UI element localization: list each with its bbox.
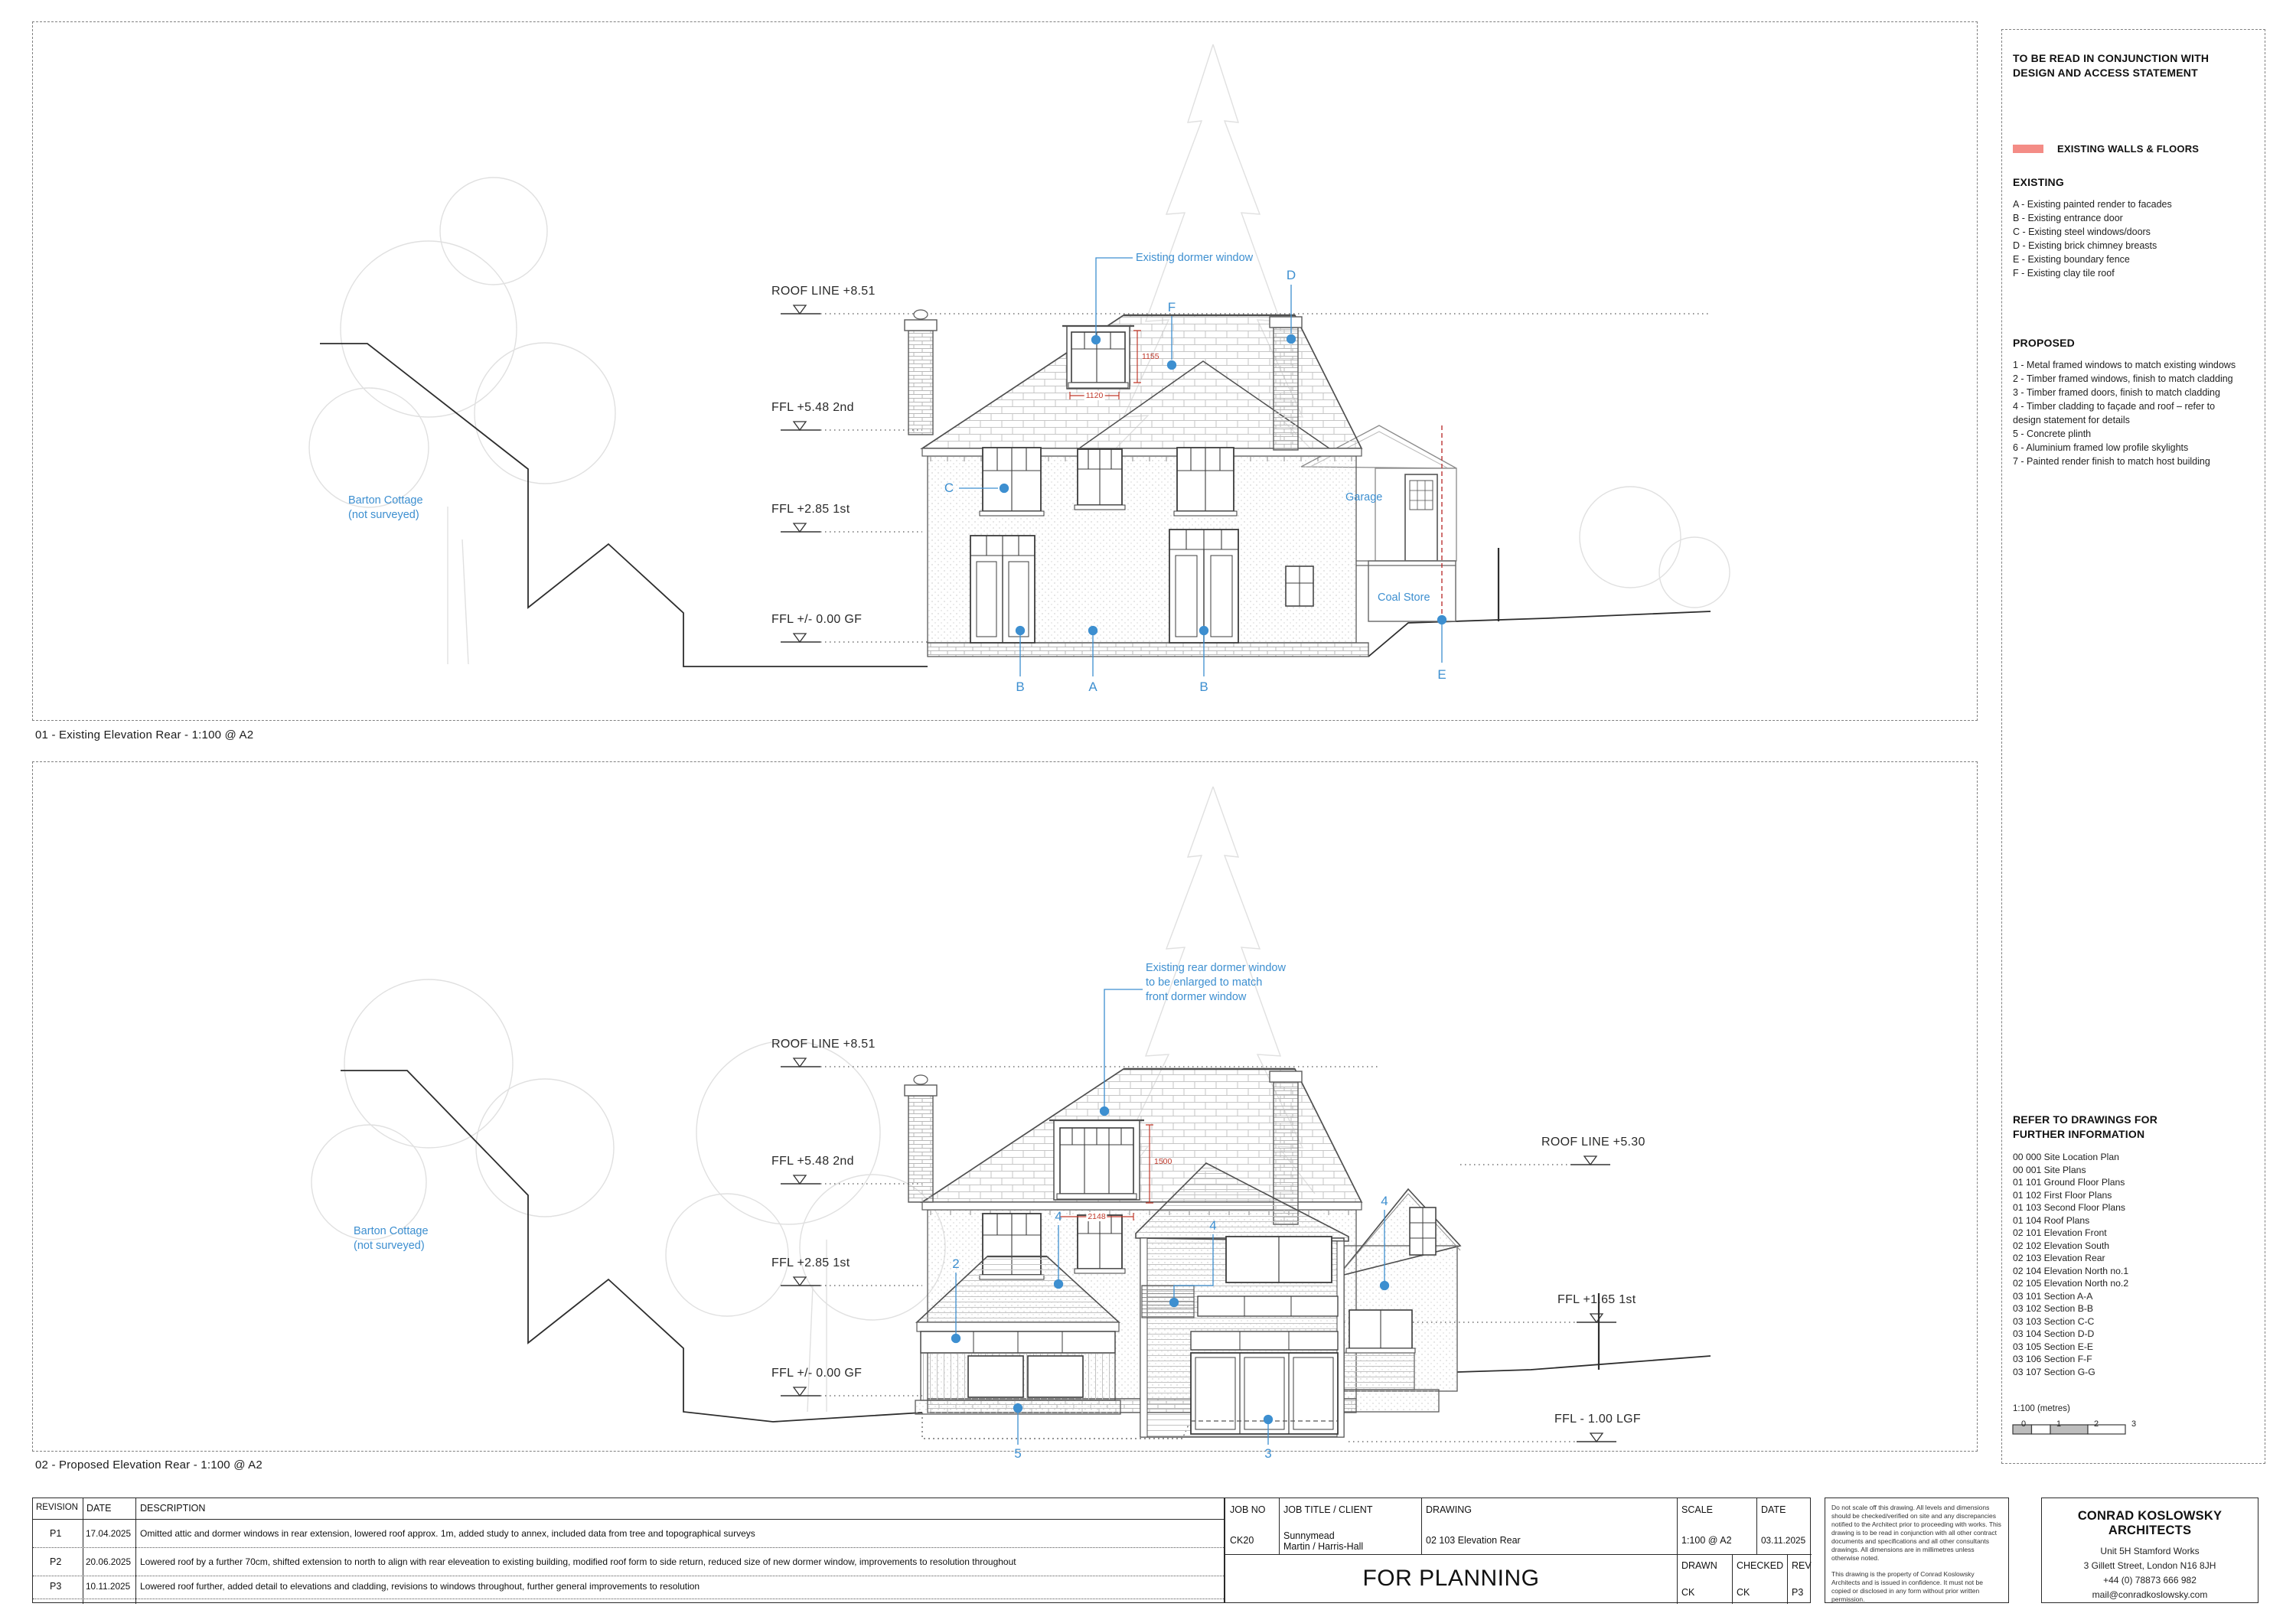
list-item: 02 103 Elevation Rear bbox=[2013, 1252, 2250, 1265]
list-item: 6 - Aluminium framed low profile skyligh… bbox=[2013, 441, 2242, 455]
list-item: 02 104 Elevation North no.1 bbox=[2013, 1265, 2250, 1278]
job-title-line2: Martin / Harris-Hall bbox=[1283, 1541, 1363, 1552]
list-item: 00 001 Site Plans bbox=[2013, 1164, 2250, 1177]
rev-row-2-date: 20.06.2025 bbox=[86, 1556, 131, 1567]
drawing-sheet: 01 - Existing Elevation Rear - 1:100 @ A… bbox=[0, 0, 2296, 1623]
drawing-value: 02 103 Elevation Rear bbox=[1426, 1535, 1521, 1546]
list-item: 03 107 Section G-G bbox=[2013, 1366, 2250, 1379]
coal-store-label: Coal Store bbox=[1378, 591, 1430, 605]
refer-title: REFER TO DRAWINGS FOR FURTHER INFORMATIO… bbox=[2013, 1113, 2250, 1142]
dormer-annotation-existing: Existing dormer window bbox=[1136, 251, 1253, 266]
list-item: A - Existing painted render to facades bbox=[2013, 197, 2250, 211]
marker-c: C bbox=[944, 481, 954, 496]
marker-4a: 4 bbox=[1055, 1209, 1062, 1224]
proposed-list: 1 - Metal framed windows to match existi… bbox=[2013, 358, 2242, 468]
rev-row-1-rev: P1 bbox=[50, 1528, 61, 1539]
marker-2: 2 bbox=[952, 1256, 959, 1272]
marker-4c: 4 bbox=[1381, 1194, 1388, 1209]
existing-list: A - Existing painted render to facadesB … bbox=[2013, 197, 2250, 280]
level-ffl000-existing: FFL +/- 0.00 GF bbox=[771, 613, 862, 627]
drawings-list: 00 000 Site Location Plan00 001 Site Pla… bbox=[2013, 1151, 2250, 1378]
list-item: 00 000 Site Location Plan bbox=[2013, 1151, 2250, 1164]
dim-1155: 1155 bbox=[1142, 352, 1159, 361]
rev-row-3-date: 10.11.2025 bbox=[86, 1581, 130, 1592]
date-value: 03.11.2025 bbox=[1761, 1535, 1805, 1546]
job-no-value: CK20 bbox=[1230, 1535, 1254, 1546]
for-planning-stamp: FOR PLANNING bbox=[1362, 1566, 1539, 1592]
marker-e: E bbox=[1437, 667, 1446, 683]
list-item: 1 - Metal framed windows to match existi… bbox=[2013, 358, 2242, 372]
date-label: DATE bbox=[1761, 1504, 1786, 1515]
caption-proposed: 02 - Proposed Elevation Rear - 1:100 @ A… bbox=[35, 1458, 263, 1471]
level-ffl165-proposed: FFL +1.65 1st bbox=[1557, 1293, 1636, 1307]
level-ffl548-existing: FFL +5.48 2nd bbox=[771, 401, 854, 415]
rev-row-3-rev: P3 bbox=[50, 1581, 61, 1592]
conjunction-note: TO BE READ IN CONJUNCTION WITH DESIGN AN… bbox=[2013, 51, 2250, 80]
marker-a: A bbox=[1088, 680, 1097, 695]
list-item: 02 105 Elevation North no.2 bbox=[2013, 1277, 2250, 1290]
list-item: 03 106 Section F-F bbox=[2013, 1353, 2250, 1366]
checked-value: CK bbox=[1737, 1587, 1750, 1598]
panel-proposed-elevation bbox=[32, 761, 1978, 1452]
marker-d: D bbox=[1287, 268, 1296, 283]
rev-row-1-date: 17.04.2025 bbox=[86, 1528, 131, 1539]
rev-row-2-rev: P2 bbox=[50, 1556, 61, 1567]
level-ffl285-existing: FFL +2.85 1st bbox=[771, 503, 850, 517]
list-item: 02 101 Elevation Front bbox=[2013, 1227, 2250, 1240]
proposed-title: PROPOSED bbox=[2013, 336, 2250, 350]
rev-row-3-desc: Lowered roof further, added detail to el… bbox=[140, 1581, 700, 1592]
scale-bar-label: 1:100 (metres) bbox=[2013, 1404, 2250, 1413]
list-item: 03 101 Section A-A bbox=[2013, 1290, 2250, 1303]
marker-f: F bbox=[1168, 300, 1176, 315]
drawing-label: DRAWING bbox=[1426, 1504, 1472, 1515]
title-block-centre: JOB NO CK20 JOB TITLE / CLIENT Sunnymead… bbox=[1225, 1498, 1811, 1603]
list-item: C - Existing steel windows/doors bbox=[2013, 225, 2250, 239]
list-item: 03 102 Section B-B bbox=[2013, 1302, 2250, 1315]
list-item: 2 - Timber framed windows, finish to mat… bbox=[2013, 372, 2242, 386]
architect-details-box: CONRAD KOSLOWSKY ARCHITECTS Unit 5H Stam… bbox=[2041, 1498, 2258, 1603]
marker-b1: B bbox=[1016, 680, 1024, 695]
level-roofline-851-proposed: ROOF LINE +8.51 bbox=[771, 1038, 876, 1051]
marker-b2: B bbox=[1199, 680, 1208, 695]
rev-header-description: DESCRIPTION bbox=[140, 1503, 205, 1514]
barton-cottage-label-proposed: Barton Cottage(not surveyed) bbox=[354, 1224, 429, 1253]
notes-sidebar: TO BE READ IN CONJUNCTION WITH DESIGN AN… bbox=[2001, 29, 2265, 1464]
garage-label: Garage bbox=[1345, 490, 1382, 505]
drawn-value: CK bbox=[1681, 1587, 1694, 1598]
rev-label: REV bbox=[1792, 1560, 1812, 1571]
disclaimer-paragraph-2: This drawing is the property of Conrad K… bbox=[1831, 1570, 2002, 1604]
list-item: 5 - Concrete plinth bbox=[2013, 427, 2242, 441]
rev-header-revision: REVISION bbox=[36, 1503, 78, 1512]
list-item: 4 - Timber cladding to façade and roof –… bbox=[2013, 399, 2242, 427]
scale-value: 1:100 @ A2 bbox=[1681, 1535, 1732, 1546]
marker-5: 5 bbox=[1014, 1446, 1021, 1462]
list-item: 01 102 First Floor Plans bbox=[2013, 1189, 2250, 1202]
level-ffl000-proposed: FFL +/- 0.00 GF bbox=[771, 1367, 862, 1380]
level-roofline-530-proposed: ROOF LINE +5.30 bbox=[1541, 1136, 1645, 1149]
list-item: E - Existing boundary fence bbox=[2013, 253, 2250, 266]
job-no-label: JOB NO bbox=[1230, 1504, 1266, 1515]
revision-table: REVISION DATE DESCRIPTION P1 17.04.2025 … bbox=[32, 1498, 1225, 1603]
caption-existing: 01 - Existing Elevation Rear - 1:100 @ A… bbox=[35, 728, 253, 741]
dim-1500: 1500 bbox=[1154, 1157, 1172, 1166]
existing-title: EXISTING bbox=[2013, 175, 2250, 190]
list-item: 01 103 Second Floor Plans bbox=[2013, 1201, 2250, 1214]
level-roofline-851-existing: ROOF LINE +8.51 bbox=[771, 285, 876, 298]
dormer-annotation-proposed: Existing rear dormer window to be enlarg… bbox=[1146, 961, 1286, 1005]
list-item: 01 104 Roof Plans bbox=[2013, 1214, 2250, 1227]
drawn-label: DRAWN bbox=[1681, 1560, 1717, 1571]
rev-row-2-desc: Lowered roof by a further 70cm, shifted … bbox=[140, 1556, 1016, 1567]
marker-4b: 4 bbox=[1209, 1218, 1216, 1234]
rev-header-date: DATE bbox=[86, 1503, 111, 1514]
list-item: 01 101 Ground Floor Plans bbox=[2013, 1176, 2250, 1189]
marker-3: 3 bbox=[1264, 1446, 1271, 1462]
list-item: 02 102 Elevation South bbox=[2013, 1240, 2250, 1253]
list-item: B - Existing entrance door bbox=[2013, 211, 2250, 225]
list-item: 03 105 Section E-E bbox=[2013, 1341, 2250, 1354]
job-title-line1: Sunnymead bbox=[1283, 1530, 1335, 1541]
list-item: 7 - Painted render finish to match host … bbox=[2013, 455, 2242, 468]
dim-1120: 1120 bbox=[1084, 391, 1105, 400]
legend-existing-walls: EXISTING WALLS & FLOORS bbox=[2013, 143, 2199, 155]
list-item: F - Existing clay tile roof bbox=[2013, 266, 2250, 280]
list-item: 03 104 Section D-D bbox=[2013, 1328, 2250, 1341]
barton-cottage-label-existing: Barton Cottage(not surveyed) bbox=[348, 494, 423, 523]
list-item: 03 103 Section C-C bbox=[2013, 1315, 2250, 1328]
legend-swatch bbox=[2013, 145, 2043, 153]
list-item: 3 - Timber framed doors, finish to match… bbox=[2013, 386, 2242, 399]
architect-address: Unit 5H Stamford Works 3 Gillett Street,… bbox=[2042, 1544, 2258, 1602]
dim-2148: 2148 bbox=[1086, 1212, 1107, 1221]
level-ffl285-proposed: FFL +2.85 1st bbox=[771, 1256, 850, 1270]
panel-existing-elevation bbox=[32, 21, 1978, 721]
level-ffl548-proposed: FFL +5.48 2nd bbox=[771, 1155, 854, 1168]
architect-name: CONRAD KOSLOWSKY ARCHITECTS bbox=[2042, 1509, 2258, 1538]
disclaimer-box: Do not scale off this drawing. All level… bbox=[1825, 1498, 2009, 1603]
scale-label: SCALE bbox=[1681, 1504, 1713, 1515]
list-item: D - Existing brick chimney breasts bbox=[2013, 239, 2250, 253]
job-title-label: JOB TITLE / CLIENT bbox=[1283, 1504, 1372, 1515]
disclaimer-paragraph-1: Do not scale off this drawing. All level… bbox=[1831, 1504, 2002, 1563]
level-lgf100-proposed: FFL - 1.00 LGF bbox=[1554, 1413, 1641, 1426]
checked-label: CHECKED bbox=[1737, 1560, 1783, 1571]
scale-bar-ticks: 0 1 2 3 bbox=[2013, 1419, 2250, 1430]
rev-row-1-desc: Omitted attic and dormer windows in rear… bbox=[140, 1528, 755, 1539]
rev-value: P3 bbox=[1792, 1587, 1803, 1598]
